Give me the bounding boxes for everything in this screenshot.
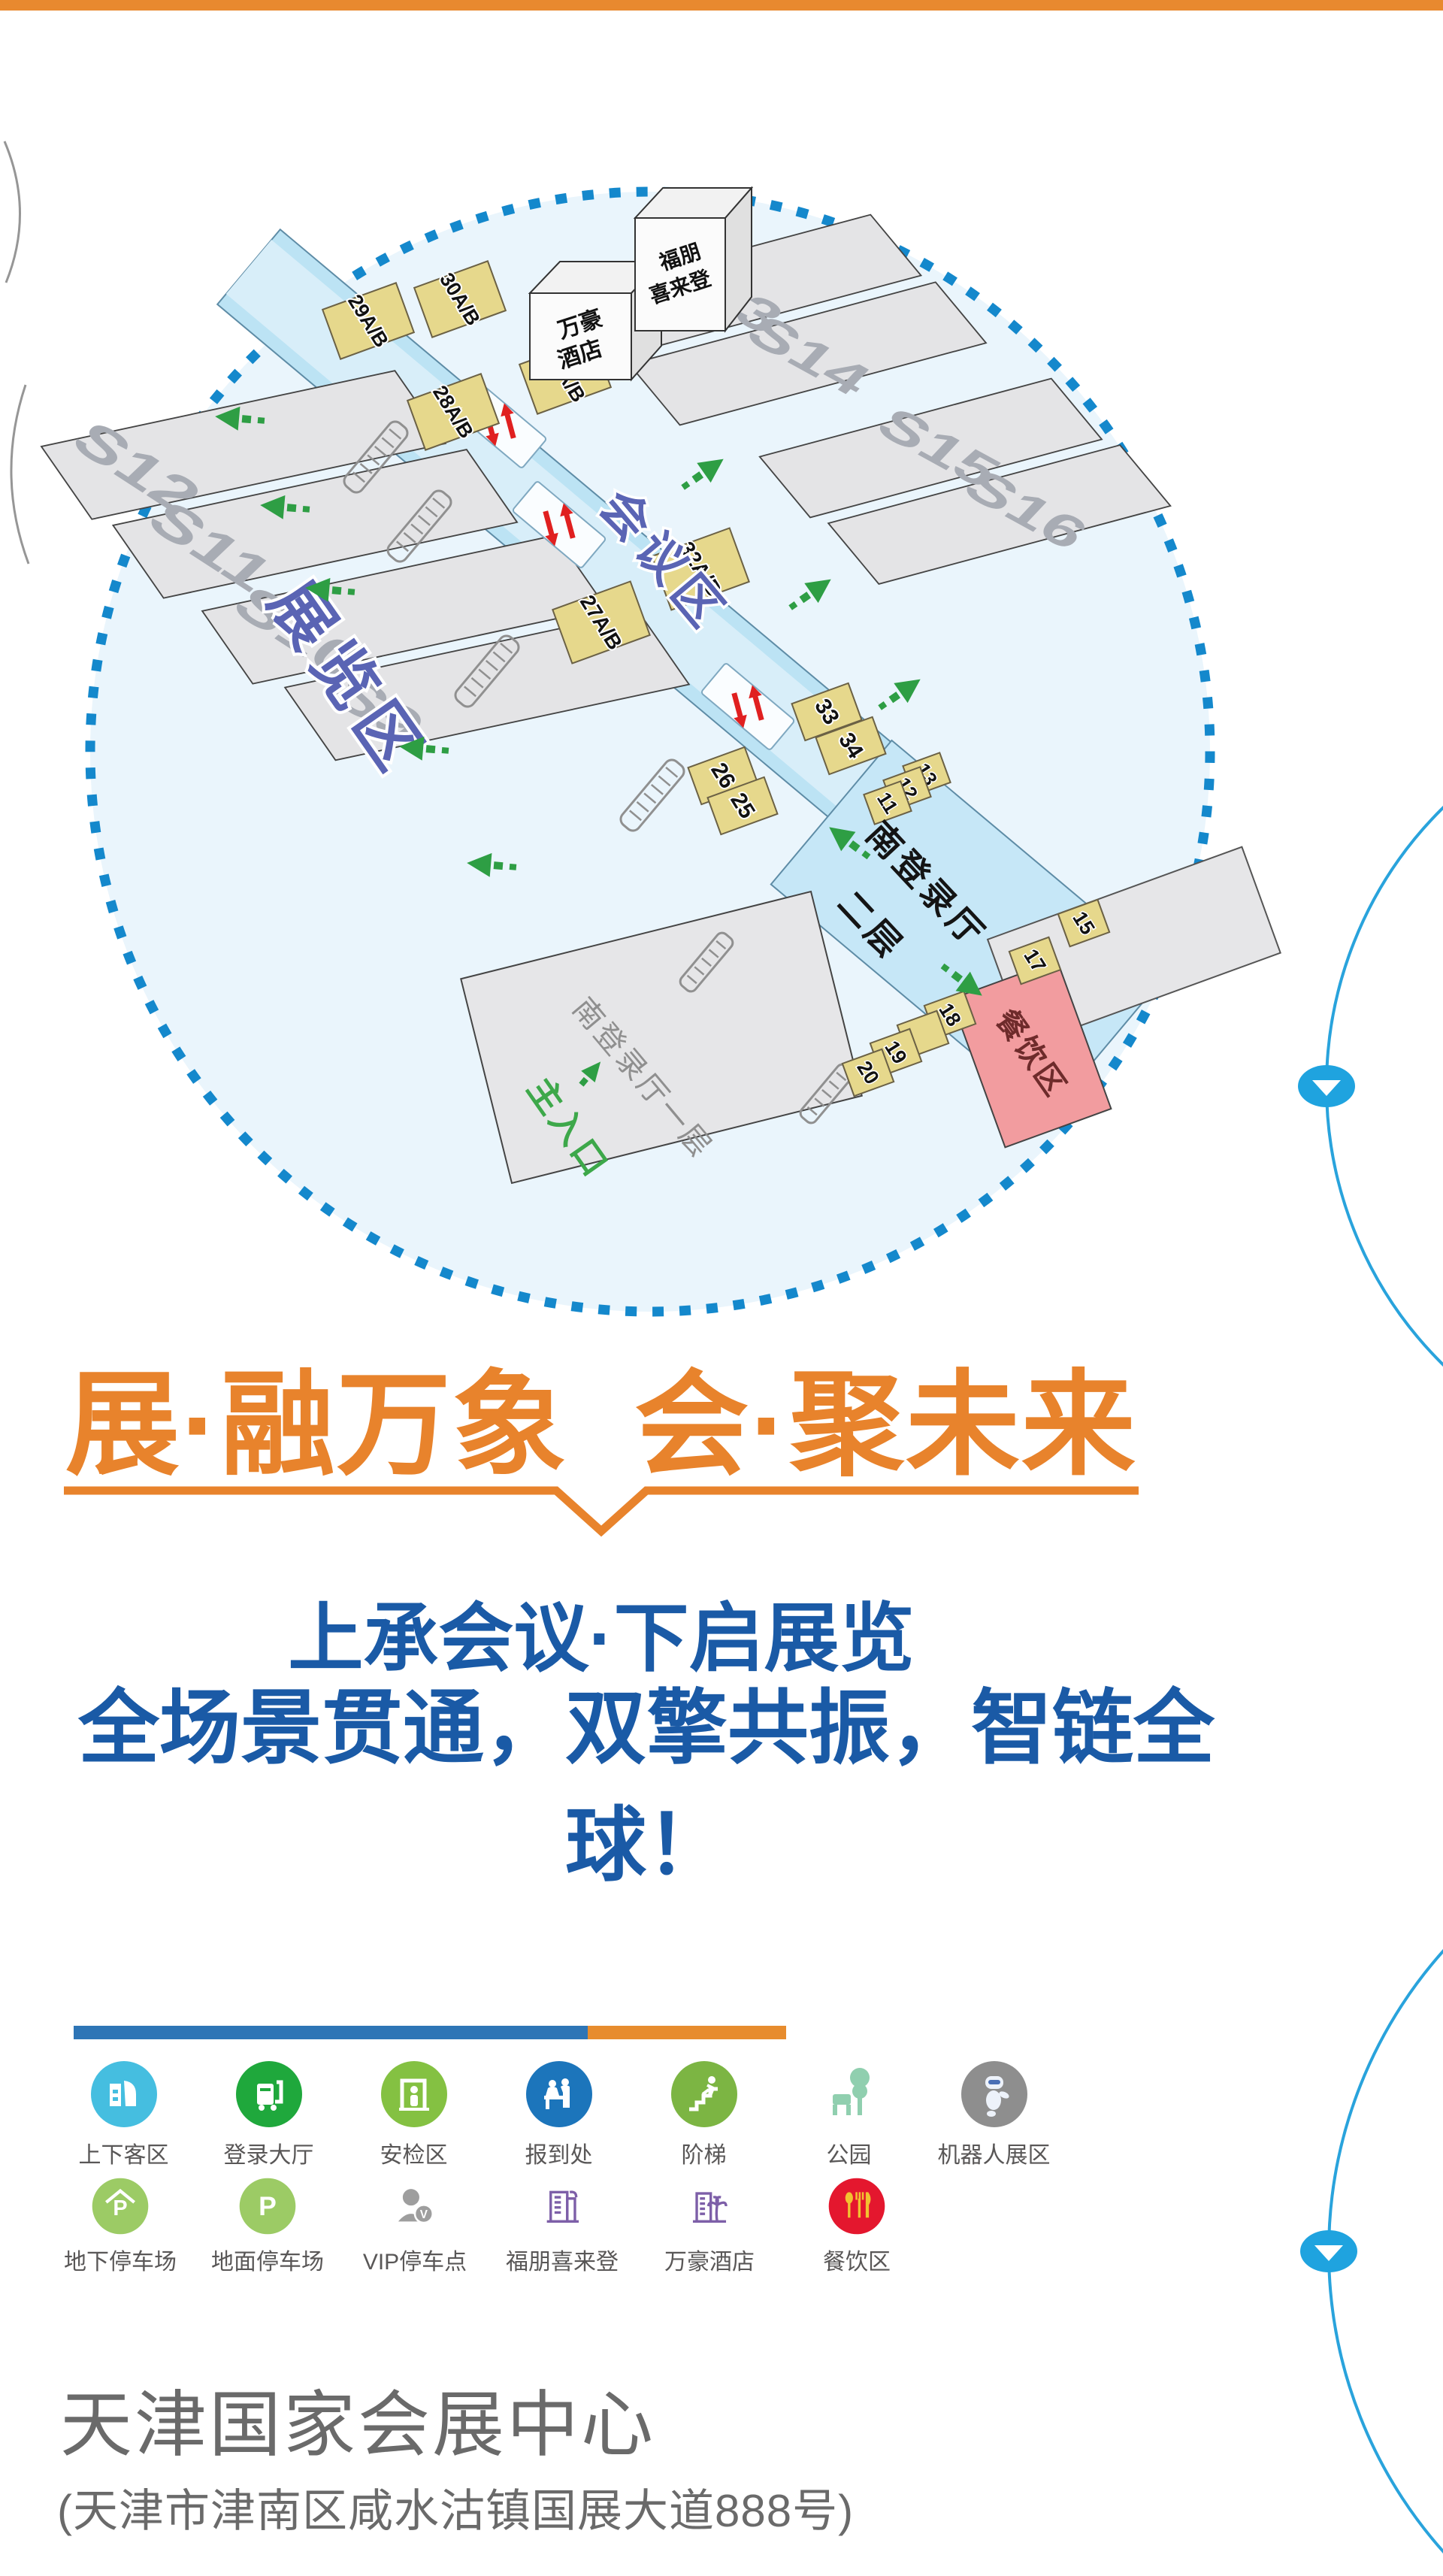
security-check-icon xyxy=(380,2060,449,2129)
legend-bar-blue xyxy=(74,2026,588,2039)
decor-arc-left-2 xyxy=(11,385,29,564)
main-slogan: 展·融万象 会·聚未来 xyxy=(0,1332,1202,1497)
legend-item-stairs: 阶梯 xyxy=(631,2060,776,2169)
stairs-icon xyxy=(670,2060,739,2129)
legend-item-passenger-zone: 上下客区 xyxy=(51,2060,196,2169)
legend-item-park: 公园 xyxy=(776,2060,921,2169)
passenger-zone-icon xyxy=(89,2060,159,2129)
venue-name: 天津国家会展中心 xyxy=(60,2366,655,2471)
sheraton-tower: 福朋 喜来登 xyxy=(635,188,752,331)
svg-text:V: V xyxy=(420,2208,428,2221)
scroll-marker-1 xyxy=(1298,1065,1355,1107)
scroll-marker-2 xyxy=(1300,2230,1357,2272)
checkin-desk-icon xyxy=(525,2060,594,2129)
vip-parking-icon: V xyxy=(386,2177,444,2235)
headline-line2: 全场景贯通，双擎共振，智链全球！ xyxy=(0,1663,1293,1897)
ground-parking-icon: P xyxy=(238,2177,297,2235)
slogan-divider xyxy=(64,1485,1146,1545)
legend-item-checkin: 报到处 xyxy=(486,2060,631,2169)
decor-arc-left-1 xyxy=(5,141,20,283)
svg-text:P: P xyxy=(113,2196,127,2220)
legend-row-1: 上下客区 登录大厅 安检区 xyxy=(51,2060,1066,2169)
park-icon xyxy=(815,2060,884,2129)
legend-divider-bar xyxy=(74,2026,786,2039)
underground-parking-icon: P xyxy=(91,2177,150,2235)
sheraton-hotel-icon xyxy=(533,2177,591,2235)
poster-page: S12 S11 S10 S9 S13 S14 S15 S16 餐饮区 xyxy=(0,0,1443,2576)
legend-item-underground-parking: P 地下停车场 xyxy=(47,2177,194,2276)
legend-item-marriott: 万豪酒店 xyxy=(636,2177,783,2276)
legend-item-vip-parking: V VIP停车点 xyxy=(341,2177,489,2276)
legend-row-2: P 地下停车场 P 地面停车场 V VIP停车点 xyxy=(47,2177,930,2276)
svg-text:P: P xyxy=(259,2191,277,2221)
legend-item-dining: 餐饮区 xyxy=(783,2177,930,2276)
legend-item-robot-zone: 机器人展区 xyxy=(921,2060,1066,2169)
marriott-hotel-icon xyxy=(680,2177,739,2235)
legend-item-security: 安检区 xyxy=(341,2060,486,2169)
legend-item-sheraton: 福朋喜来登 xyxy=(489,2177,636,2276)
legend-item-login-hall: 登录大厅 xyxy=(196,2060,341,2169)
robot-zone-icon xyxy=(960,2060,1029,2129)
decor-arc-right-2 xyxy=(1329,1800,1443,2576)
dining-area-icon xyxy=(827,2177,886,2235)
venue-address: (天津市津南区咸水沽镇国展大道888号) xyxy=(57,2475,854,2540)
login-hall-icon xyxy=(234,2060,304,2129)
legend-item-ground-parking: P 地面停车场 xyxy=(194,2177,341,2276)
legend-bar-orange xyxy=(588,2026,786,2039)
